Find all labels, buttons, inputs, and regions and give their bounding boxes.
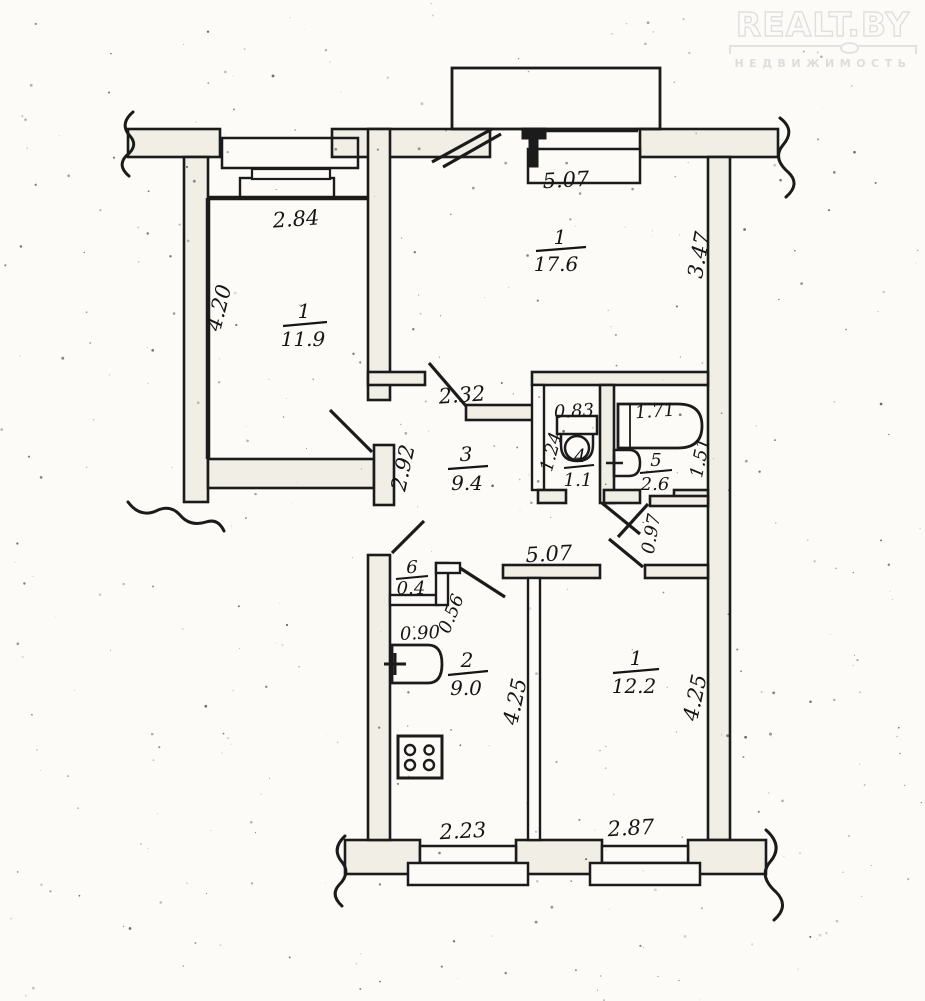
room-label-big-room: 1 17.6 xyxy=(534,225,586,276)
dim-bedroom-window: 2.87 xyxy=(606,815,656,842)
break-mid-left xyxy=(128,502,224,531)
window-sill-kitchen xyxy=(408,863,528,885)
dim-living-width: 2.84 xyxy=(271,205,320,232)
wall-wc-left xyxy=(532,385,544,490)
wall-bath-bottom-a xyxy=(538,490,566,503)
room-area: 0.4 xyxy=(397,578,426,599)
door-living xyxy=(330,410,372,452)
floorplan-drawing: 2.84 4.20 5.07 3.47 2.32 2.92 0.83 1.24 … xyxy=(0,0,925,1001)
wall-bathblock-top xyxy=(532,372,708,385)
wall-right xyxy=(708,157,730,840)
camera-icon xyxy=(840,42,859,54)
wall-closet-top xyxy=(650,496,708,506)
wall-closet-bottom xyxy=(645,565,708,578)
stove-burner xyxy=(425,746,434,755)
door-jamb-stem xyxy=(529,139,538,167)
wall-living-bigroom-divider xyxy=(368,129,390,400)
watermark-rule xyxy=(729,45,917,54)
wall-kitchen-left xyxy=(368,555,390,840)
room-area: 2.6 xyxy=(640,474,670,495)
window-kitchen xyxy=(420,846,516,863)
room-number: 1 xyxy=(630,646,643,670)
window-sill-living xyxy=(240,178,334,198)
wall-top-left xyxy=(128,129,220,157)
room-area: 9.0 xyxy=(450,676,482,700)
stove-burner xyxy=(424,760,434,770)
wall-wc-bath-divider xyxy=(600,385,614,503)
dim-big-room-width: 5.07 xyxy=(542,167,591,193)
dim-hall-length: 5.07 xyxy=(525,541,574,567)
room-area: 9.4 xyxy=(451,471,483,495)
wall-living-bottom xyxy=(208,459,374,488)
room-number: 4 xyxy=(573,446,585,467)
wall-hall xyxy=(503,565,600,578)
room-label-corridor: 3 9.4 xyxy=(448,442,488,495)
floorplan-page: 2.84 4.20 5.07 3.47 2.32 2.92 0.83 1.24 … xyxy=(0,0,925,1001)
break-bottom-right xyxy=(765,830,782,920)
room-label-bedroom: 1 12.2 xyxy=(612,646,659,698)
room-number: 1 xyxy=(298,299,311,323)
dimension-labels: 2.84 4.20 5.07 3.47 2.32 2.92 0.83 1.24 … xyxy=(201,167,715,845)
dim-bath-width: 1.71 xyxy=(634,400,675,424)
door-niche xyxy=(460,568,505,597)
dim-kitchen-window: 2.23 xyxy=(438,818,487,844)
window-sill-bedroom xyxy=(590,863,700,885)
dim-closet-wall: 0.97 xyxy=(638,512,666,556)
dim-bedroom-depth: 4.25 xyxy=(678,672,711,724)
window-living xyxy=(252,169,330,179)
room-number: 6 xyxy=(406,557,417,578)
wall-corridor-top xyxy=(466,405,540,420)
wall-stub-bigroom xyxy=(368,372,425,385)
door-bedroom xyxy=(609,539,643,567)
stove-burner xyxy=(405,745,415,755)
door-jamb-cap xyxy=(522,128,546,139)
watermark-brand: REALT.BY xyxy=(725,5,921,44)
wall-kitchen-bedroom-partition xyxy=(528,578,540,840)
room-label-bath: 5 2.6 xyxy=(640,450,672,495)
door-kitchen xyxy=(392,521,424,553)
fraction-line xyxy=(448,466,488,469)
wall-bath-bottom-b xyxy=(604,490,640,503)
room-area: 11.9 xyxy=(281,327,326,351)
room-area: 1.1 xyxy=(564,470,593,491)
watermark: REALT.BY НЕДВИЖИМОСТЬ xyxy=(725,5,921,70)
dim-corridor-width: 2.32 xyxy=(437,381,486,408)
room-area: 12.2 xyxy=(612,674,657,698)
room-label-kitchen: 2 9.0 xyxy=(448,648,488,700)
room-number: 3 xyxy=(460,442,473,466)
dim-kitchen-depth: 4.25 xyxy=(498,676,531,728)
dim-niche-width: 0.90 xyxy=(399,622,440,645)
niche-wall-top xyxy=(436,563,460,573)
watermark-subtitle: НЕДВИЖИМОСТЬ xyxy=(725,57,921,70)
stove xyxy=(398,736,442,778)
stove-outline xyxy=(398,736,442,778)
kitchen-sink xyxy=(384,645,442,683)
room-number: 2 xyxy=(460,648,474,672)
windows xyxy=(240,128,700,885)
balcony-top xyxy=(452,68,660,129)
room-number: 5 xyxy=(650,450,661,471)
window-bedroom xyxy=(602,846,688,863)
room-label-living: 1 11.9 xyxy=(281,299,327,351)
room-label-niche: 6 0.4 xyxy=(396,557,428,599)
room-area: 17.6 xyxy=(534,252,579,276)
break-top-right xyxy=(779,118,795,197)
wall-left xyxy=(184,157,208,502)
room-label-wc: 4 1.1 xyxy=(564,446,594,491)
wall-top-right xyxy=(640,129,778,157)
dim-wc-width: 0.83 xyxy=(553,400,594,423)
stove-burner xyxy=(405,760,415,770)
room-number: 1 xyxy=(554,225,567,249)
